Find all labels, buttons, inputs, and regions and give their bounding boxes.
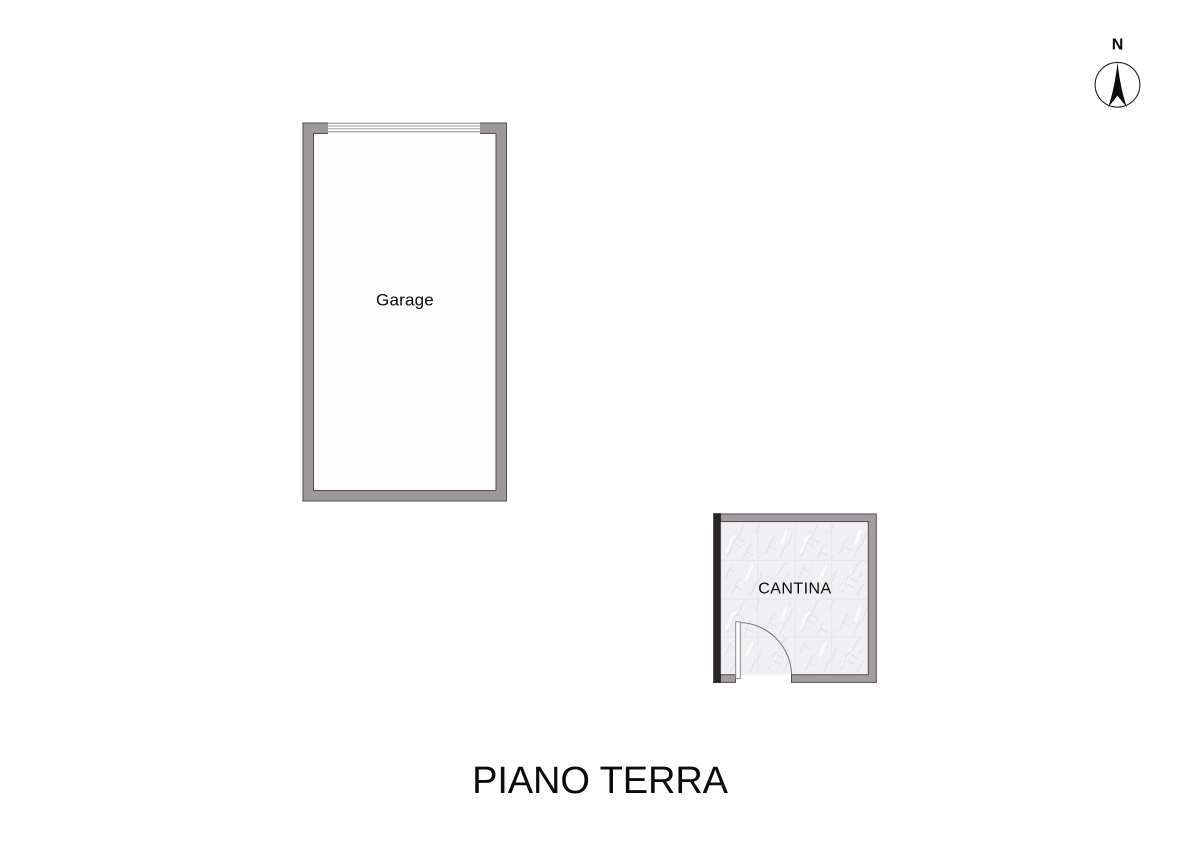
svg-text:CANTINA: CANTINA	[758, 581, 831, 598]
svg-text:N: N	[1112, 37, 1124, 54]
svg-text:Garage: Garage	[376, 291, 434, 310]
svg-text:PIANO TERRA: PIANO TERRA	[472, 760, 729, 802]
